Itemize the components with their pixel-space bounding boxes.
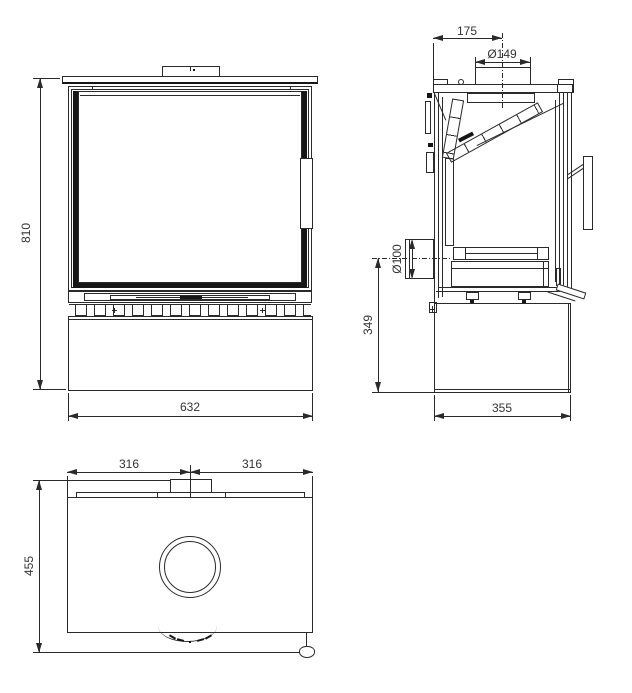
arrowhead (303, 469, 313, 475)
arrowhead (180, 469, 190, 475)
arrowhead (409, 269, 415, 279)
arrowhead (409, 239, 415, 249)
arrowhead (37, 78, 43, 88)
stove-technical-drawing: 810 632 (0, 0, 632, 693)
arrowhead (375, 258, 381, 268)
door-handle-side (583, 156, 593, 230)
dim-label-inlet-height: 349 (361, 295, 375, 355)
dim-label-top-depth: 455 (22, 536, 36, 596)
arrowhead (68, 413, 78, 419)
dim-line-top-depth (39, 480, 40, 653)
top-view-dimensions: 316 316 455 (0, 0, 632, 693)
arrowhead (190, 469, 200, 475)
arrowhead (375, 382, 381, 392)
arrowhead (37, 380, 43, 390)
door-handle-front (300, 158, 313, 229)
dim-label-front-width: 632 (160, 400, 220, 414)
handle-knob-top-view (299, 646, 315, 658)
arrowhead (434, 413, 444, 419)
arrowhead (67, 469, 77, 475)
arrowhead (36, 480, 42, 490)
dim-label-depth: 355 (472, 401, 532, 415)
dim-label-inlet-diameter: Ø100 (390, 229, 404, 289)
extension-line (33, 652, 300, 653)
dim-label-half-width-left: 316 (99, 457, 159, 471)
dim-label-flue-offset: 175 (437, 24, 497, 38)
extension-line (33, 480, 170, 481)
dim-label-front-height: 810 (19, 203, 33, 263)
arrowhead (303, 413, 313, 419)
dim-label-flue-diameter: Ø149 (472, 47, 532, 61)
arrowhead (36, 643, 42, 653)
arrowhead (561, 413, 571, 419)
extension-line (312, 476, 313, 497)
dim-label-half-width-right: 316 (222, 457, 282, 471)
